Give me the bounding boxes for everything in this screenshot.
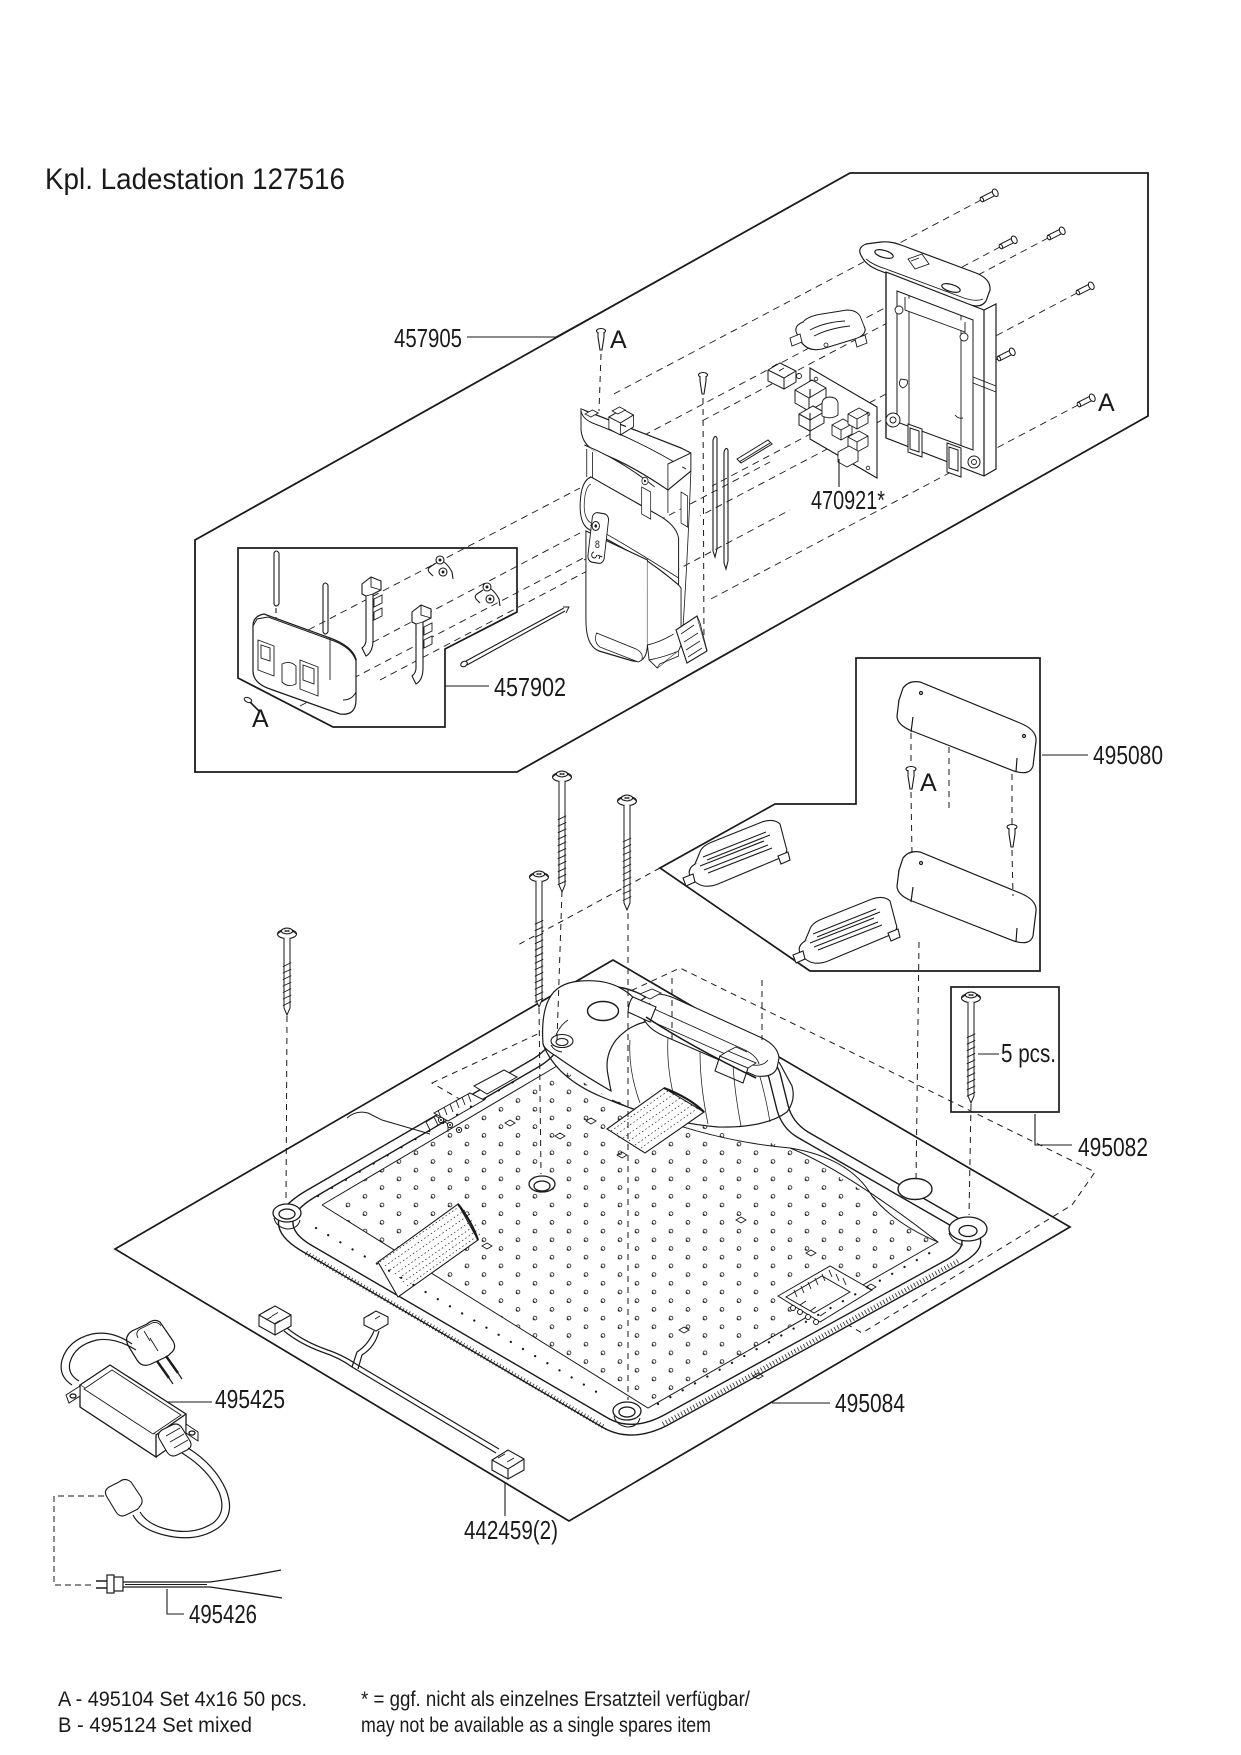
svg-text:442459(2): 442459(2) [464,1515,558,1545]
svg-text:A: A [610,326,627,354]
svg-text:495425: 495425 [215,1384,285,1414]
svg-text:A: A [252,705,269,733]
svg-text:495082: 495082 [1078,1132,1148,1162]
svg-text:A: A [1098,389,1115,417]
svg-text:8: 8 [595,539,600,551]
svg-text:495080: 495080 [1093,740,1163,770]
svg-text:495084: 495084 [835,1388,905,1418]
svg-text:470921*: 470921* [811,485,885,515]
svg-text:* = ggf. nicht als einzelnes E: * = ggf. nicht als einzelnes Ersatzteil … [361,1688,750,1711]
svg-text:may not be available as a sing: may not be available as a single spares … [361,1714,711,1737]
svg-text:495426: 495426 [189,1599,257,1629]
svg-text:Kpl. Ladestation 127516: Kpl. Ladestation 127516 [45,163,345,196]
svg-text:5 pcs.: 5 pcs. [1001,1038,1056,1068]
svg-text:A - 495104 Set 4x16 50 pcs: A - 495104 Set 4x16 50 pcs. [58,1688,307,1711]
svg-text:A: A [920,769,937,797]
svg-text:B - 495124 Set mixed: B - 495124 Set mixed [58,1714,252,1737]
svg-text:457905: 457905 [394,323,462,353]
svg-text:457902: 457902 [494,672,566,702]
